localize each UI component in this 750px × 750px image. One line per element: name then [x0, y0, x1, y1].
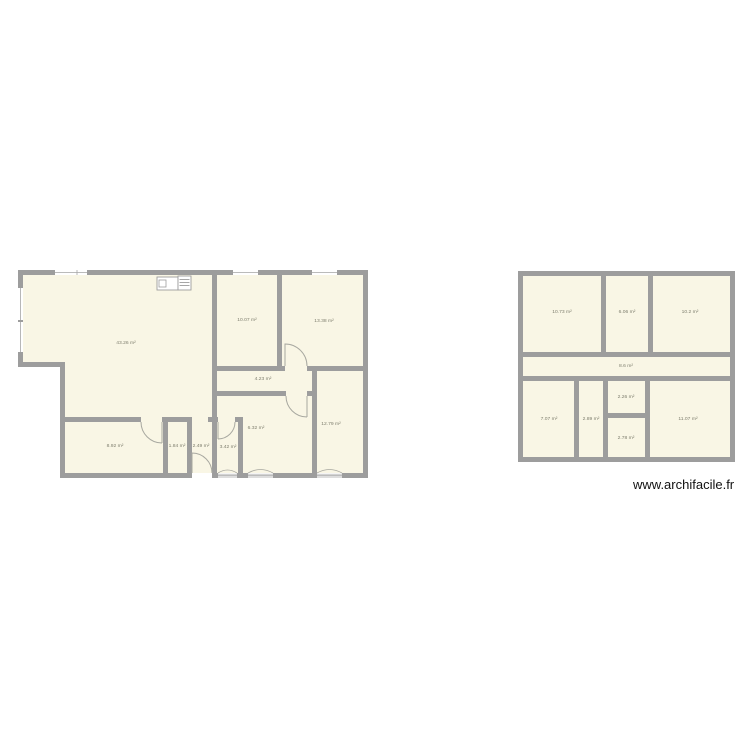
left-floor-plan[interactable]: 43.26 m² 10.07 m² 13.38 m² 4.23 m² 6.32 … [18, 270, 368, 478]
archifacile-watermark: www.archifacile.fr [633, 478, 734, 492]
left-floor-plan-drawing [18, 270, 368, 478]
right-floor-plan-drawing [518, 271, 735, 462]
floorplan-canvas: 43.26 m² 10.07 m² 13.38 m² 4.23 m² 6.32 … [0, 0, 750, 750]
kitchen-unit-icon [157, 276, 191, 290]
right-floor-plan[interactable]: 10.73 m² 6.06 m² 10.2 m² 8.6 m² 7.07 m² … [518, 271, 735, 462]
floor-fill [518, 271, 735, 462]
